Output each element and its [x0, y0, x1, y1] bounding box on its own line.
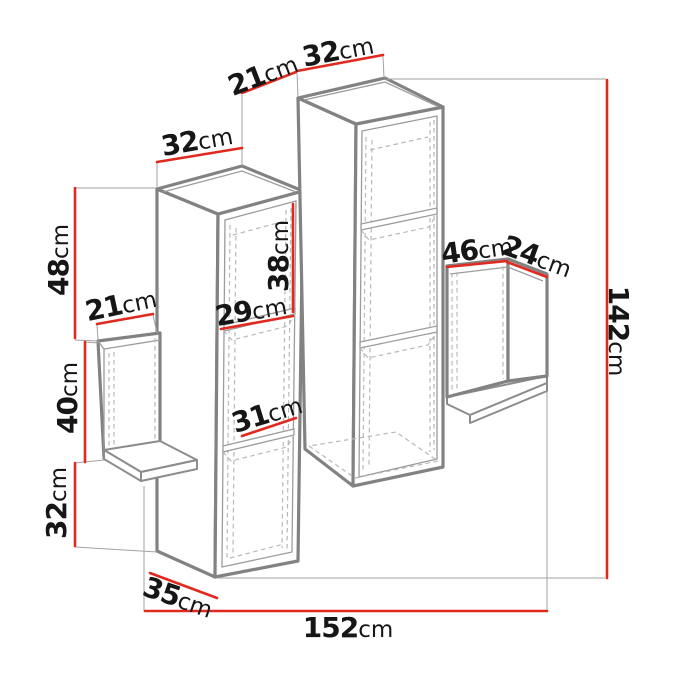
left-column-side-face [157, 189, 218, 577]
dim-label-40cm: 40cm [51, 362, 84, 434]
svg-text:32cm: 32cm [299, 27, 376, 73]
right-shelf-back-panel [447, 259, 508, 397]
extension-line [75, 460, 104, 463]
extension-line [383, 56, 384, 78]
dim-label-32cm-top-right: 32cm [299, 27, 376, 73]
right-shelf [447, 259, 547, 423]
svg-text:32cm: 32cm [159, 118, 236, 163]
extension-line [75, 547, 157, 552]
left-shelf-back-panel [98, 333, 160, 458]
svg-text:21cm: 21cm [82, 281, 159, 328]
extension-line [97, 325, 98, 340]
extension-line [75, 340, 98, 341]
svg-text:48cm: 48cm [42, 224, 75, 296]
dim-label-32cm-top-left: 32cm [159, 118, 236, 163]
dim-label-32cm-lower: 32cm [40, 467, 73, 539]
svg-text:32cm: 32cm [40, 467, 73, 539]
svg-text:40cm: 40cm [51, 362, 84, 434]
svg-text:152cm: 152cm [303, 611, 394, 644]
dim-label-48cm: 48cm [42, 224, 75, 296]
right-column [298, 78, 443, 486]
svg-text:142cm: 142cm [602, 286, 635, 377]
svg-text:21cm: 21cm [223, 46, 302, 103]
right-column-opening [359, 116, 437, 477]
extension-line [85, 342, 98, 343]
diagram-stage: 32cm 21cm 32cm 48cm 21cm 40cm 32cm 35cm … [0, 0, 675, 675]
right-shelf-side-panel [508, 259, 547, 381]
dim-label-142cm: 142cm [602, 286, 635, 377]
right-column-side-face [298, 98, 356, 486]
furniture-dimension-diagram: 32cm 21cm 32cm 48cm 21cm 40cm 32cm 35cm … [0, 0, 675, 675]
dim-label-35cm: 35cm [139, 570, 218, 625]
dim-label-21cm-shelf: 21cm [82, 281, 159, 328]
svg-text:35cm: 35cm [139, 570, 218, 625]
dim-label-21cm-top: 21cm [223, 46, 302, 103]
dim-label-152cm: 152cm [303, 611, 394, 644]
